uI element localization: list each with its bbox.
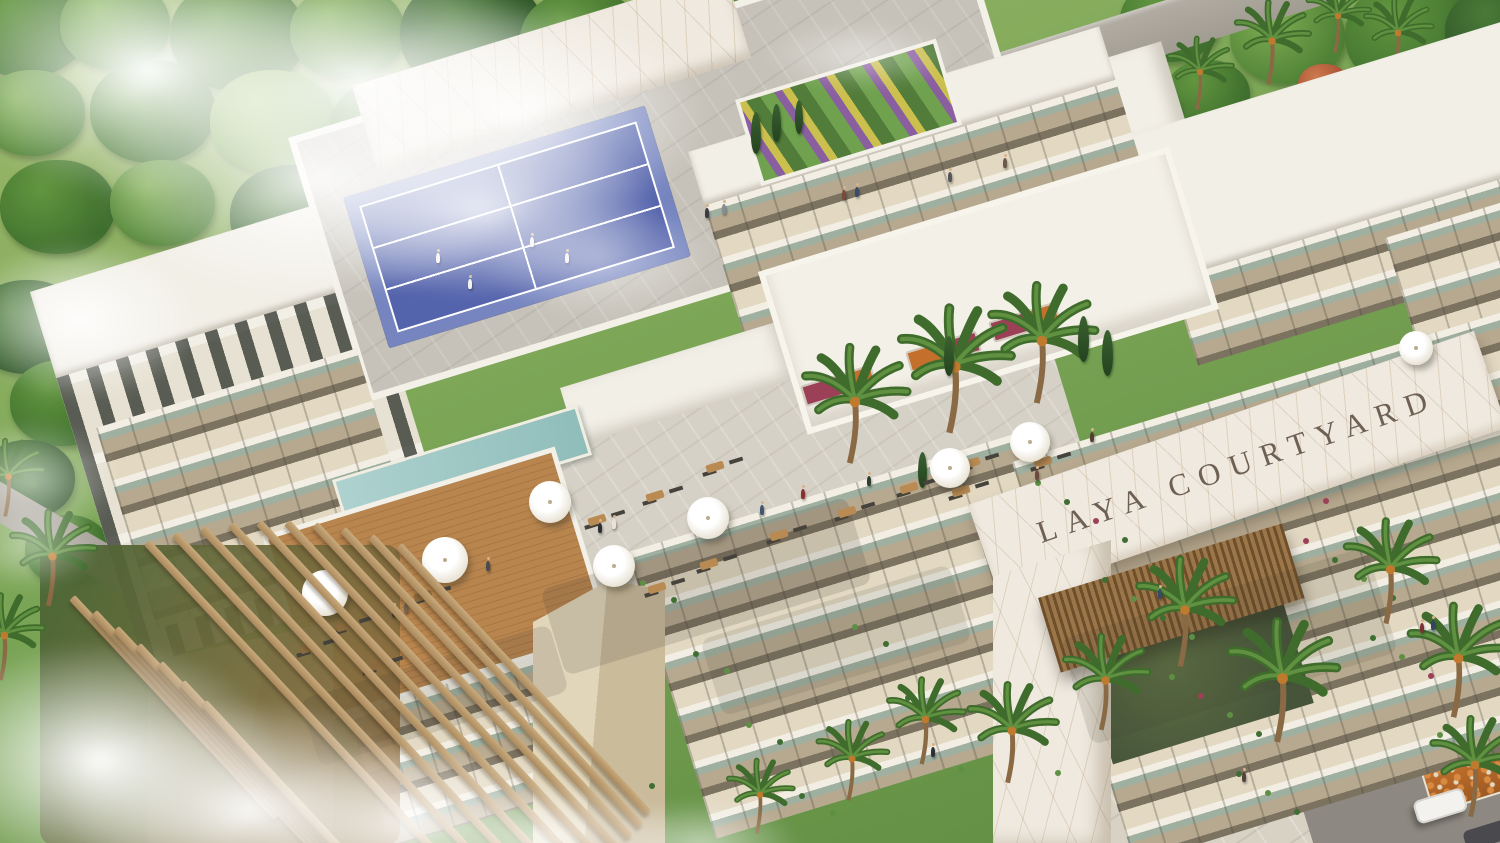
tree — [290, 0, 405, 79]
balcony-plant — [671, 597, 677, 603]
parasol-umbrella — [687, 497, 729, 539]
padel-player — [565, 253, 569, 263]
person — [1003, 158, 1007, 168]
parasol-umbrella — [1399, 331, 1433, 365]
parasol-umbrella — [930, 448, 970, 488]
person — [598, 523, 602, 533]
cypress-tree — [751, 112, 761, 154]
balcony-plant — [724, 668, 730, 674]
person — [1420, 623, 1424, 633]
padel-player — [468, 279, 472, 289]
person — [486, 561, 490, 571]
person — [931, 747, 935, 757]
balcony-plant — [1370, 635, 1376, 641]
palm-tree — [719, 754, 801, 836]
padel-player — [436, 253, 440, 263]
balcony-plant — [1303, 538, 1309, 544]
balcony-plant — [1323, 498, 1329, 504]
palm-tree — [957, 676, 1067, 786]
person — [705, 208, 709, 218]
parasol-umbrella — [529, 481, 571, 523]
cypress-tree — [918, 452, 927, 488]
person — [867, 476, 871, 486]
cypress-tree — [772, 104, 781, 142]
balcony-plant — [1265, 790, 1271, 796]
balcony-plant — [649, 783, 655, 789]
tree — [110, 160, 215, 246]
palm-tree — [1420, 710, 1500, 820]
person — [801, 489, 805, 499]
person — [842, 190, 846, 200]
balcony-plant — [852, 624, 858, 630]
balcony-plant — [1035, 480, 1041, 486]
cypress-tree — [795, 100, 803, 134]
tree — [90, 60, 215, 163]
person — [612, 519, 616, 529]
balcony-plant — [1093, 518, 1099, 524]
balcony-plant — [693, 651, 699, 657]
tree — [0, 160, 115, 254]
balcony-plant — [830, 810, 836, 816]
person — [1035, 470, 1039, 480]
parasol-umbrella — [593, 545, 635, 587]
balcony-plant — [1122, 537, 1128, 543]
palm-tree — [1396, 596, 1500, 721]
parasol-umbrella — [1010, 422, 1050, 462]
person — [722, 204, 726, 214]
padel-player — [530, 237, 534, 247]
person — [1431, 620, 1435, 630]
palm-tree — [808, 715, 896, 803]
cypress-tree — [1102, 330, 1113, 376]
balcony-plant — [1169, 674, 1175, 680]
person — [1242, 772, 1246, 782]
balcony-plant — [777, 739, 783, 745]
balcony-plant — [640, 580, 646, 586]
tree — [0, 70, 85, 156]
balcony-plant — [746, 722, 752, 728]
aerial-render-scene: LAYA COURTYARD — [0, 0, 1500, 843]
balcony-plant — [1102, 577, 1108, 583]
balcony-plant — [1064, 499, 1070, 505]
balcony-plant — [883, 641, 889, 647]
palm-tree — [0, 588, 52, 683]
person — [760, 505, 764, 515]
palm-tree — [1215, 611, 1350, 746]
person — [948, 172, 952, 182]
person — [855, 187, 859, 197]
cypress-tree — [1078, 316, 1089, 362]
palm-tree — [1053, 628, 1158, 733]
person — [1090, 432, 1094, 442]
cypress-tree — [944, 336, 954, 376]
person — [1158, 589, 1162, 599]
balcony-plant — [1294, 809, 1300, 815]
balcony-plant — [1198, 693, 1204, 699]
